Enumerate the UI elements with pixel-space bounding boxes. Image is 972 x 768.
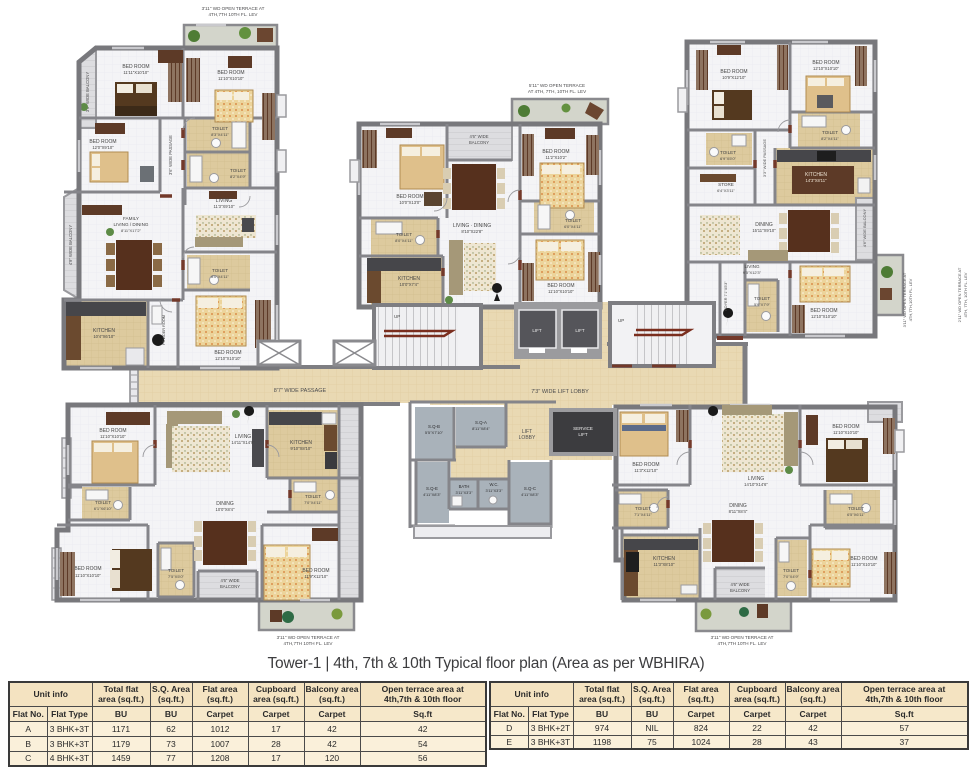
svg-text:S.Q-E: S.Q-E — [426, 486, 438, 491]
svg-text:8'0"X4'11": 8'0"X4'11" — [211, 274, 229, 279]
svg-text:11'10"X10'10": 11'10"X10'10" — [851, 562, 877, 567]
svg-text:4TH,7TH,10TH FL. LEV: 4TH,7TH,10TH FL. LEV — [908, 278, 913, 321]
svg-text:11'11"X10'10": 11'11"X10'10" — [123, 70, 149, 75]
svg-text:W.C.: W.C. — [489, 482, 498, 487]
svg-text:TOILET: TOILET — [848, 506, 864, 511]
svg-text:10'4"X6'10": 10'4"X6'10" — [93, 334, 115, 339]
svg-text:4'6" WIDE: 4'6" WIDE — [469, 134, 488, 139]
svg-text:3'11"X3'3": 3'11"X3'3" — [486, 489, 504, 493]
svg-text:8'11"X8'4": 8'11"X8'4" — [729, 509, 748, 514]
svg-text:3'11" WD OPEN TERRACE AT: 3'11" WD OPEN TERRACE AT — [202, 6, 265, 11]
svg-text:3'11" WD OPEN TERRACE AT: 3'11" WD OPEN TERRACE AT — [902, 272, 907, 327]
svg-text:8'7" WIDE PASSAGE: 8'7" WIDE PASSAGE — [274, 388, 327, 394]
svg-text:3'6" WIDE PASSAGE: 3'6" WIDE PASSAGE — [168, 135, 173, 175]
svg-text:12'0"X9'10": 12'0"X9'10" — [92, 145, 114, 150]
svg-text:7'5"X5'0": 7'5"X5'0" — [168, 574, 185, 579]
svg-text:TOILET: TOILET — [396, 232, 412, 237]
svg-text:11'10"X10'10": 11'10"X10'10" — [100, 434, 126, 439]
svg-text:11'10"X10'10": 11'10"X10'10" — [218, 76, 244, 81]
svg-text:LIFT: LIFT — [532, 328, 542, 333]
svg-text:4TH,7TH 10TH FL. LEV: 4TH,7TH 10TH FL. LEV — [717, 641, 767, 646]
svg-text:6'5"X6'11": 6'5"X6'11" — [847, 512, 865, 517]
svg-text:BATH: BATH — [459, 484, 470, 489]
svg-text:12'10"X10'10": 12'10"X10'10" — [813, 66, 840, 71]
svg-text:6'1"X6'10": 6'1"X6'10" — [94, 506, 113, 511]
svg-text:6'9"X5'0": 6'9"X5'0" — [720, 156, 737, 161]
svg-text:LIVING / DINING: LIVING / DINING — [114, 222, 149, 227]
svg-text:7'3" WIDE LIFT LOBBY: 7'3" WIDE LIFT LOBBY — [531, 389, 589, 395]
svg-text:TOILET: TOILET — [822, 130, 838, 135]
svg-text:S.Q-A: S.Q-A — [475, 420, 487, 425]
svg-text:4'6" WIDE: 4'6" WIDE — [730, 582, 749, 587]
svg-text:11'9"X12'10": 11'9"X12'10" — [304, 574, 328, 579]
svg-text:BALCONY: BALCONY — [730, 588, 750, 593]
svg-text:TOILET: TOILET — [635, 506, 651, 511]
svg-text:3'11" WD OPEN TERRACE AT: 3'11" WD OPEN TERRACE AT — [277, 635, 340, 640]
svg-text:TOILET: TOILET — [754, 296, 770, 301]
svg-text:8'0"X4'11": 8'0"X4'11" — [395, 238, 413, 243]
svg-text:14'11"X14'9": 14'11"X14'9" — [231, 440, 255, 445]
svg-text:8'11"X8'4": 8'11"X8'4" — [472, 426, 490, 431]
svg-text:FOYER 7'1"X5'3": FOYER 7'1"X5'3" — [724, 281, 728, 311]
svg-text:11'3"X8'10": 11'3"X8'10" — [653, 562, 675, 567]
svg-text:TOILET: TOILET — [95, 500, 111, 505]
svg-text:2'11" WD OPEN TERRACE AT: 2'11" WD OPEN TERRACE AT — [957, 267, 962, 322]
svg-text:BALCONY: BALCONY — [469, 140, 489, 145]
svg-text:7'0"X4'11": 7'0"X4'11" — [304, 500, 322, 505]
svg-text:FAMILY: FAMILY — [123, 216, 139, 221]
svg-text:4TH,7TH 10TH FL. LEV: 4TH,7TH 10TH FL. LEV — [208, 12, 258, 17]
svg-text:11'2"X10'2": 11'2"X10'2" — [545, 155, 567, 160]
svg-text:LIFT: LIFT — [575, 328, 585, 333]
svg-text:TOILET: TOILET — [305, 494, 321, 499]
svg-text:TOILET: TOILET — [168, 568, 184, 573]
svg-text:5'5"X7'10": 5'5"X7'10" — [425, 430, 444, 435]
svg-text:TOILET: TOILET — [212, 268, 228, 273]
svg-text:11'10"X10'10": 11'10"X10'10" — [833, 430, 859, 435]
svg-text:UP: UP — [394, 314, 400, 319]
svg-text:8'10"X22'8": 8'10"X22'8" — [461, 229, 483, 234]
svg-text:11'10"X10'10": 11'10"X10'10" — [548, 289, 574, 294]
svg-text:5'9"X7'9": 5'9"X7'9" — [754, 302, 771, 307]
svg-text:6'0"X4'11": 6'0"X4'11" — [564, 224, 582, 229]
svg-text:SERVICE: SERVICE — [573, 426, 593, 431]
svg-text:10'0"X7'4": 10'0"X7'4" — [399, 282, 419, 287]
svg-text:11'3"X12'10": 11'3"X12'10" — [634, 468, 658, 473]
svg-text:10'0"X8'4": 10'0"X8'4" — [215, 507, 235, 512]
svg-text:8'2"X4'9": 8'2"X4'9" — [230, 174, 247, 179]
svg-text:11'10"X10'10": 11'10"X10'10" — [75, 573, 101, 578]
svg-text:TOILET: TOILET — [783, 568, 799, 573]
svg-text:9'10"X8'10": 9'10"X8'10" — [290, 446, 312, 451]
svg-text:10'0"X13'0": 10'0"X13'0" — [399, 200, 421, 205]
svg-text:BALCONY: BALCONY — [220, 584, 240, 589]
svg-text:9'5"X12'3": 9'5"X12'3" — [743, 270, 762, 275]
svg-text:11'3"X9'10": 11'3"X9'10" — [213, 204, 235, 209]
svg-text:3'3" WIDE PASSAGE: 3'3" WIDE PASSAGE — [762, 139, 767, 177]
svg-text:POWDER ROOM: POWDER ROOM — [162, 315, 166, 345]
svg-text:7'1"X4'11": 7'1"X4'11" — [634, 512, 652, 517]
svg-text:4TH, 7TH, 10TH FL. LEV: 4TH, 7TH, 10TH FL. LEV — [963, 272, 968, 317]
svg-text:AT 4TH, 7TH, 10TH FL. LEV: AT 4TH, 7TH, 10TH FL. LEV — [528, 89, 587, 94]
svg-text:TOILET: TOILET — [565, 218, 581, 223]
svg-text:8'11"X17'2": 8'11"X17'2" — [121, 228, 142, 233]
svg-text:7'0"X4'9": 7'0"X4'9" — [783, 574, 800, 579]
svg-text:15'11"X9'10": 15'11"X9'10" — [752, 228, 776, 233]
svg-text:4'9" WIDE BALCONY: 4'9" WIDE BALCONY — [68, 225, 73, 265]
svg-text:3'11"X3'3": 3'11"X3'3" — [456, 491, 474, 495]
svg-text:3'11" WD OPEN TERRACE AT: 3'11" WD OPEN TERRACE AT — [711, 635, 774, 640]
svg-text:LOBBY: LOBBY — [519, 435, 536, 441]
svg-text:4'11"X8'3": 4'11"X8'3" — [521, 492, 539, 497]
svg-text:14'3"X8'11": 14'3"X8'11" — [805, 178, 827, 183]
svg-text:10'9"X12'10": 10'9"X12'10" — [722, 75, 746, 80]
svg-text:S.Q-B: S.Q-B — [428, 424, 440, 429]
svg-text:4'11"X8'3": 4'11"X8'3" — [423, 492, 441, 497]
svg-text:12'10"X10'10": 12'10"X10'10" — [215, 356, 242, 361]
svg-text:TOILET: TOILET — [720, 150, 736, 155]
svg-text:TOILET: TOILET — [212, 126, 228, 131]
svg-text:4'6" WIDE: 4'6" WIDE — [220, 578, 239, 583]
svg-text:4TH,7TH 10TH FL. LEV: 4TH,7TH 10TH FL. LEV — [283, 641, 333, 646]
svg-text:BED ROOM: BED ROOM — [74, 566, 101, 572]
svg-text:STORE: STORE — [718, 182, 734, 187]
svg-text:4'6" WIDE BALCONY: 4'6" WIDE BALCONY — [862, 208, 867, 247]
svg-text:TOILET: TOILET — [230, 168, 246, 173]
svg-text:12'10"X10'10": 12'10"X10'10" — [811, 314, 838, 319]
svg-text:LIFT: LIFT — [578, 432, 588, 437]
svg-text:14'10"X14'6": 14'10"X14'6" — [744, 482, 768, 487]
svg-text:8'2"X4'11": 8'2"X4'11" — [821, 136, 839, 141]
svg-text:S.Q-C: S.Q-C — [524, 486, 536, 491]
svg-text:LIVING: LIVING — [744, 264, 759, 269]
svg-text:8'3"X4'11": 8'3"X4'11" — [211, 132, 229, 137]
svg-text:6'4"X3'11": 6'4"X3'11" — [717, 188, 735, 193]
svg-text:UP: UP — [618, 318, 624, 323]
svg-text:5'11" WD OPEN TERRACE: 5'11" WD OPEN TERRACE — [529, 83, 585, 88]
